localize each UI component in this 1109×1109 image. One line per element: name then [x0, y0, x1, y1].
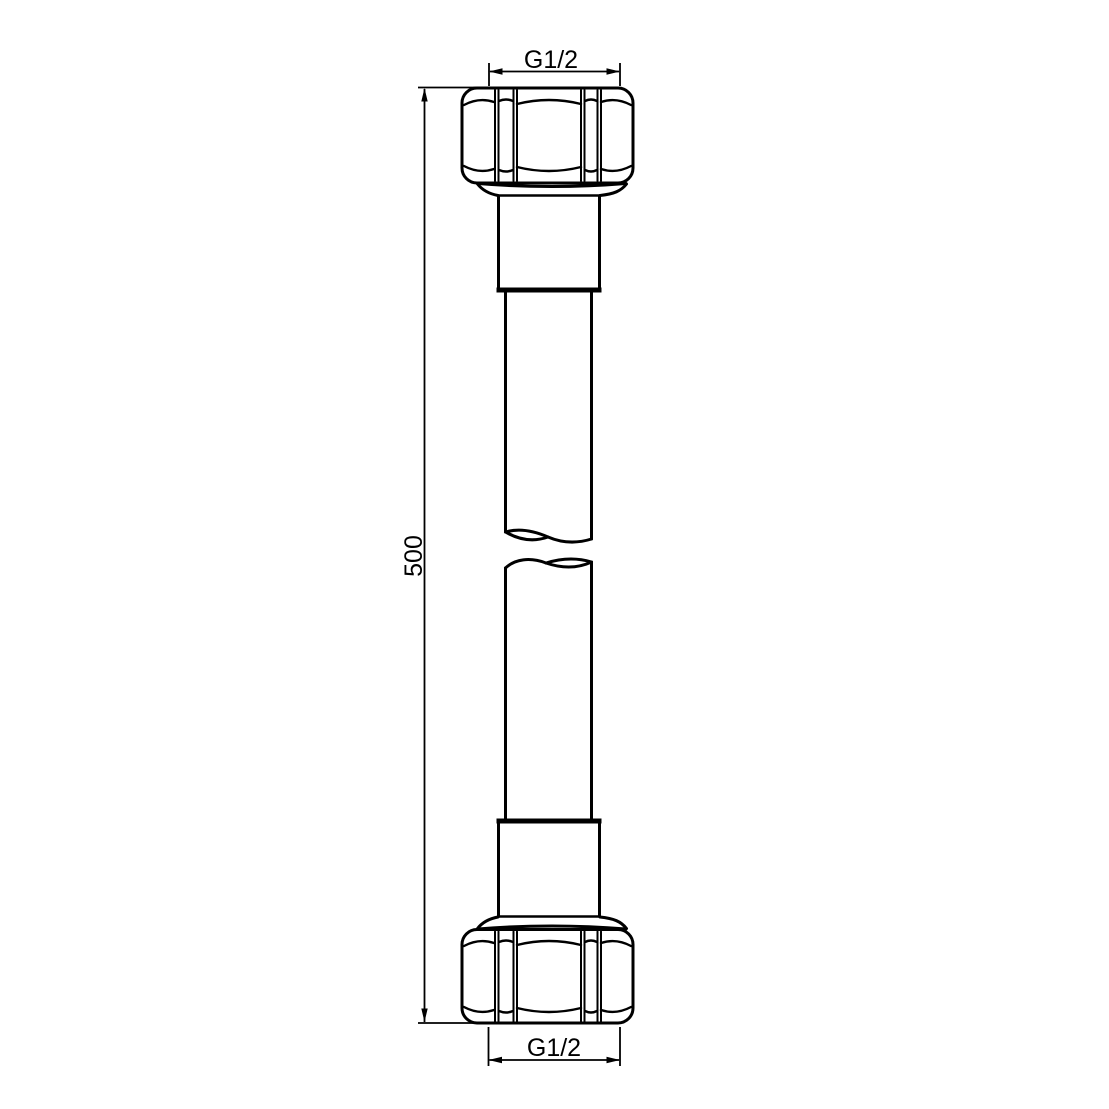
hose-tube-lower [506, 562, 592, 819]
bottom-ferrule [497, 821, 602, 916]
shower-hose-technical-drawing: 500 G1/2 G1/2 [0, 0, 1109, 1109]
length-dimension: 500 [400, 88, 478, 1024]
technical-drawing-canvas: 500 G1/2 G1/2 [0, 0, 1109, 1109]
top-nut-chamfer-arcs [464, 100, 631, 172]
bottom-thread-arrow-right [607, 1057, 621, 1063]
length-dimension-arrow-down [421, 1009, 427, 1023]
break-lower-curve [506, 559, 592, 568]
bottom-nut-flare [478, 917, 627, 930]
top-thread-dimension: G1/2 [489, 46, 620, 86]
bottom-nut-chamfer-arcs [464, 941, 631, 1013]
bottom-connector-nut [462, 917, 633, 1024]
bottom-nut-facet-lines [495, 932, 601, 1022]
length-dimension-arrow-up [421, 88, 427, 102]
top-connector-nut [462, 88, 633, 196]
top-thread-arrow-left [489, 68, 503, 74]
break-upper-curve [506, 530, 592, 542]
top-nut-flare [478, 184, 627, 196]
top-thread-label: G1/2 [524, 46, 578, 74]
bottom-nut-outline [462, 930, 633, 1024]
top-nut-outline [462, 88, 633, 183]
bottom-thread-label: G1/2 [527, 1034, 581, 1062]
top-thread-arrow-right [607, 68, 621, 74]
break-symbol [506, 530, 592, 568]
hose-tube-upper [506, 292, 592, 539]
top-nut-facet-lines [495, 90, 601, 181]
length-dimension-label: 500 [400, 535, 428, 577]
bottom-thread-arrow-left [489, 1057, 503, 1063]
top-ferrule [497, 196, 602, 290]
bottom-thread-dimension: G1/2 [489, 1027, 621, 1066]
